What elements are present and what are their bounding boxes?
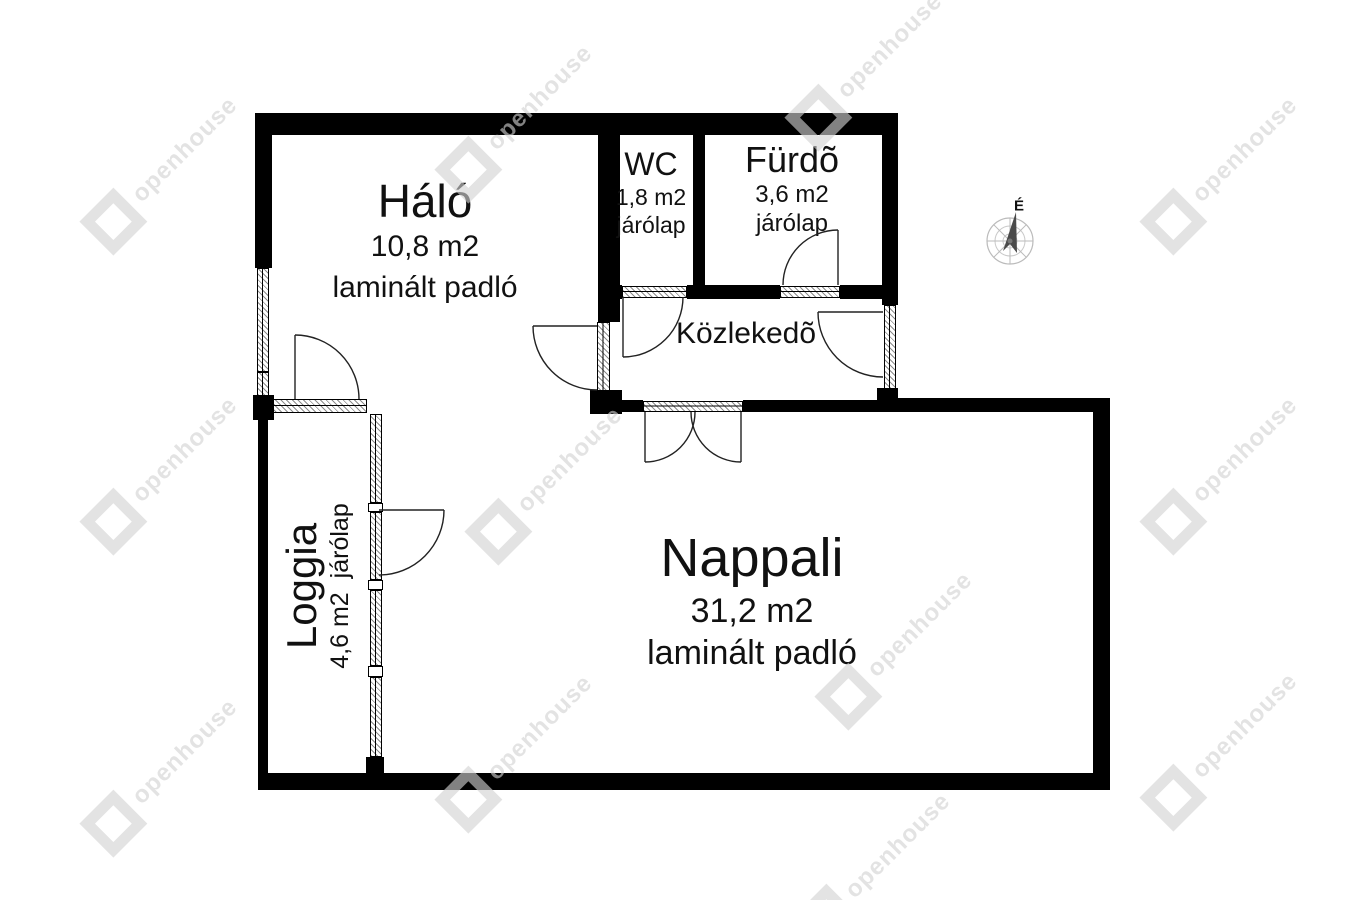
room-label-halo: Háló 10,8 m2 laminált padló: [332, 176, 517, 308]
wall-nappali-right: [1093, 398, 1110, 790]
wall-hall-top-a: [598, 285, 622, 299]
room-label-nappali: Nappali 31,2 m2 laminált padló: [647, 528, 857, 672]
wall-nappali-top-right: [884, 398, 1110, 412]
wall-halo-left: [255, 113, 272, 268]
room-floor: járólap: [326, 503, 354, 578]
room-label-wc: WC 1,8 m2 járólap: [616, 146, 686, 238]
wall-corner-hall-se: [877, 388, 898, 412]
halo-balcony-door: [295, 335, 359, 399]
room-area: 10,8 m2: [332, 226, 517, 268]
watermark: openhouse: [79, 384, 250, 555]
wall-bottom: [258, 773, 1110, 790]
room-name: Közlekedõ: [676, 318, 816, 350]
room-name: Nappali: [647, 528, 857, 588]
watermark: openhouse: [79, 686, 250, 857]
watermark: openhouse: [792, 780, 963, 900]
entrance-door-threshold: [884, 305, 896, 390]
room-floor: járólap: [745, 210, 839, 238]
wall-corner-halo-sw: [253, 395, 274, 420]
room-name: Fürdõ: [745, 140, 839, 180]
room-area: 31,2 m2: [647, 588, 857, 634]
wall-furdo-right: [882, 113, 898, 305]
halo-door-threshold: [597, 322, 610, 395]
room-name: Háló: [332, 176, 517, 226]
room-floor: járólap: [616, 212, 686, 238]
furdo-door-threshold: [780, 286, 840, 298]
wall-loggia-left: [258, 419, 268, 775]
furdo-door: [783, 230, 838, 285]
room-floor: laminált padló: [332, 268, 517, 308]
glazing-mullion: [368, 666, 383, 677]
watermark: openhouse: [1139, 660, 1310, 831]
wc-door-threshold: [622, 286, 687, 298]
room-floor: laminált padló: [647, 634, 857, 672]
room-label-furdo: Fürdõ 3,6 m2 járólap: [745, 140, 839, 238]
compass-rose: [987, 212, 1033, 264]
nappali-double-door: [645, 412, 741, 462]
wall-wc-furdo: [693, 113, 705, 285]
wall-nappali-top-mid: [743, 400, 882, 412]
room-name: WC: [616, 146, 686, 182]
loggia-glazing-bottom: [370, 677, 382, 757]
room-area: 1,8 m2: [616, 182, 686, 212]
watermark: openhouse: [464, 394, 635, 565]
halo-door: [533, 326, 597, 390]
room-name: Loggia: [279, 503, 325, 669]
wall-hall-top-b: [687, 285, 780, 299]
floor-plan: Háló 10,8 m2 laminált padló WC 1,8 m2 já…: [0, 0, 1350, 900]
room-area: 3,6 m2: [745, 180, 839, 210]
room-label-kozlekedo: Közlekedõ: [676, 318, 816, 350]
double-door-threshold: [643, 401, 743, 412]
loggia-door: [379, 510, 444, 575]
wc-door: [623, 297, 683, 357]
entrance-door: [818, 312, 883, 377]
room-label-loggia: Loggia 4,6 m2járólap: [279, 503, 355, 669]
halo-left-window: [257, 268, 269, 372]
room-area: 4,6 m2: [326, 592, 354, 668]
glazing-mullion: [368, 503, 383, 512]
north-label: É: [1014, 198, 1024, 215]
watermark: openhouse: [1139, 384, 1310, 555]
glazing-mullion: [368, 580, 383, 590]
loggia-glazing-top: [370, 414, 382, 503]
wall-glazing-foot: [366, 757, 384, 775]
watermark: openhouse: [79, 84, 250, 255]
compass-needle: [1003, 212, 1017, 253]
watermark: openhouse: [1139, 84, 1310, 255]
watermark: openhouse: [434, 662, 605, 833]
loggia-glazing-door: [370, 512, 382, 580]
loggia-glazing-mid: [370, 590, 382, 666]
halo-left-window-lower: [257, 372, 269, 396]
halo-loggia-window: [263, 399, 367, 413]
